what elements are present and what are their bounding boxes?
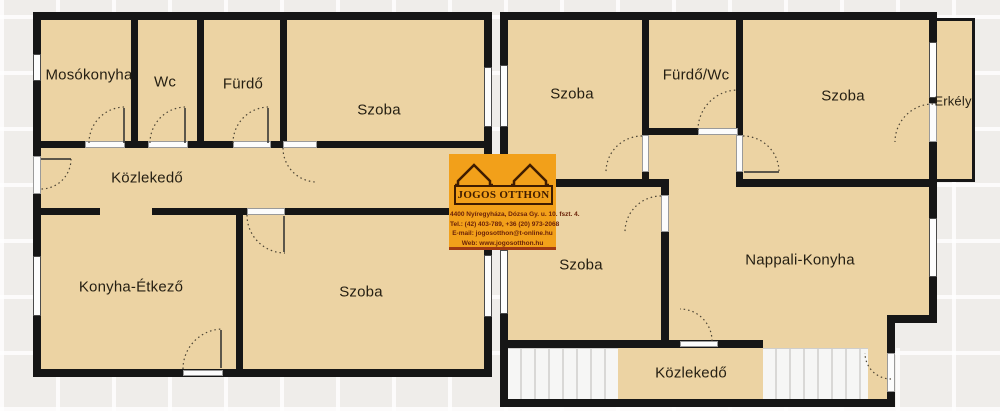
room-label-kozlekedo-left: Közlekedő [111, 170, 183, 187]
agency-phone: Tel.: (42) 403-789, +36 (20) 973-2068 [450, 220, 555, 230]
room-label-konyha-etkezo: Konyha-Étkező [79, 279, 183, 296]
floor-plan: Mosókonyha Wc Fürdő Szoba Közlekedő Kony… [0, 0, 1000, 411]
room-label-furdo-wc: Fürdő/Wc [663, 67, 730, 84]
room-label-szoba-right-3: Szoba [559, 257, 603, 274]
room-label-furdo: Fürdő [223, 76, 263, 93]
agency-web: Web: www.jogosotthon.hu [450, 239, 555, 249]
room-label-erkely: Erkély [934, 94, 971, 109]
agency-name: JOGOS OTTHON [454, 185, 553, 205]
room-label-kozlekedo-right: Közlekedő [655, 365, 727, 382]
room-label-nappali-konyha: Nappali-Konyha [745, 252, 855, 269]
room-label-wc: Wc [154, 74, 176, 91]
room-label-szoba-right-2: Szoba [821, 88, 865, 105]
agency-contact: 4400 Nyíregyháza, Dózsa Gy. u. 10. fszt.… [450, 210, 555, 248]
agency-email: E-mail: jogosotthon@t-online.hu [450, 229, 555, 239]
room-label-szoba-bottom-left: Szoba [339, 284, 383, 301]
room-label-szoba-top-left: Szoba [357, 102, 401, 119]
house-roofs-icon [449, 156, 556, 188]
room-label-mosokonyha: Mosókonyha [45, 67, 132, 84]
agency-watermark: JOGOS OTTHON 4400 Nyíregyháza, Dózsa Gy.… [449, 154, 556, 250]
room-label-szoba-right-1: Szoba [550, 86, 594, 103]
agency-address: 4400 Nyíregyháza, Dózsa Gy. u. 10. fszt.… [450, 210, 555, 220]
